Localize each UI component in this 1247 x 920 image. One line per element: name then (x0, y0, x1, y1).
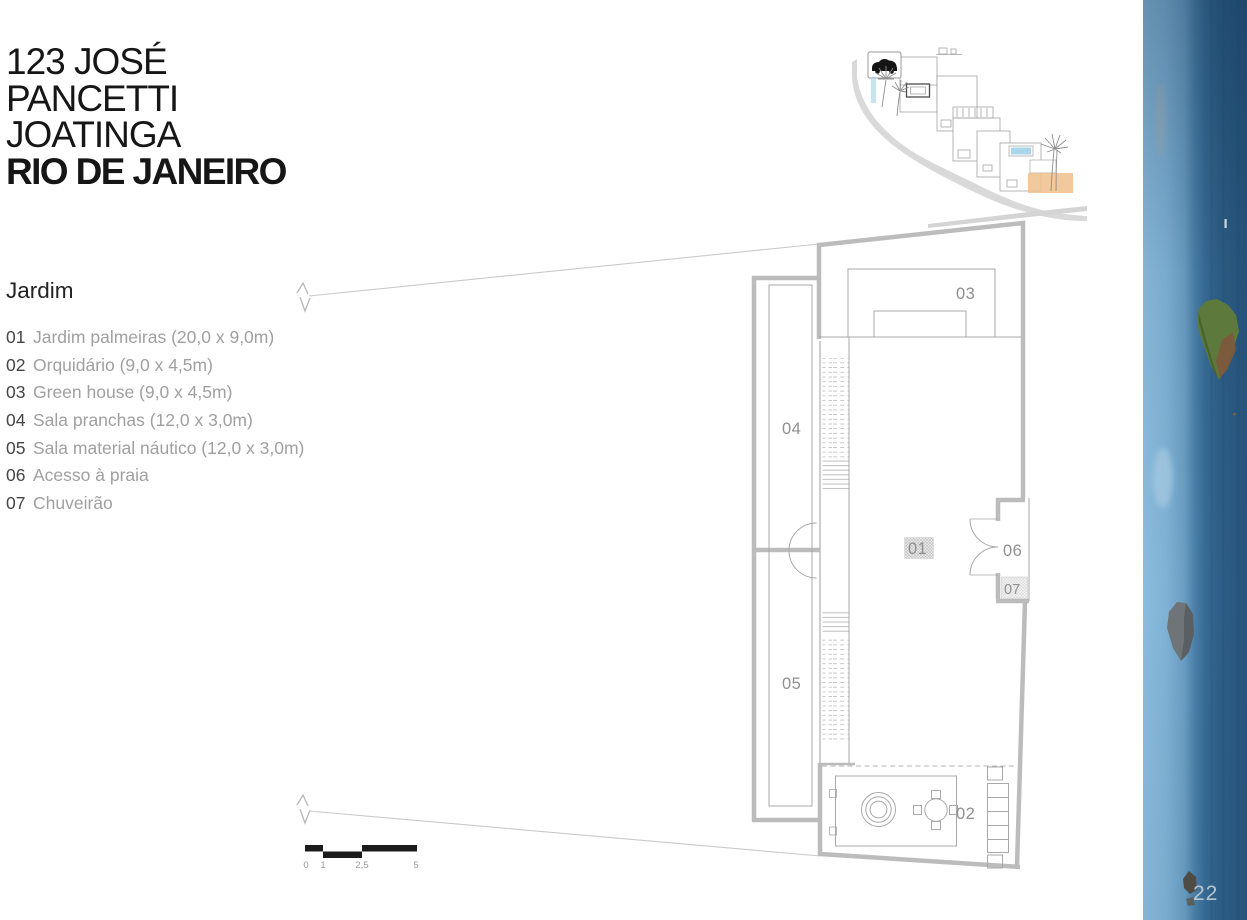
table-and-chairs (914, 791, 958, 830)
plan-room-label-07: 07 (1004, 582, 1020, 598)
annex-inner-wall (769, 285, 812, 806)
plan-room-label-04: 04 (782, 420, 801, 438)
annex-walls (754, 278, 820, 820)
plan-right-bottom-walls (820, 601, 1025, 867)
section-cut-line-top (309, 244, 819, 296)
section-marker-bottom (297, 795, 310, 823)
scale-tick-3: 5 (413, 860, 418, 871)
plan-room-label-06: 06 (1003, 542, 1022, 560)
architectural-drawings: 0 1 2,5 5 (0, 0, 1247, 920)
scale-bar-segment (323, 852, 362, 859)
bench-seat (988, 767, 1009, 868)
stair-flight-dashed-lower (823, 638, 849, 742)
pool-icon (1011, 148, 1031, 155)
plan-room-label-05: 05 (782, 675, 801, 693)
stair-flight-dashed-upper (823, 358, 849, 460)
page: 123 JOSÉ PANCETTI JOATINGA RIO DE JANEIR… (0, 0, 1247, 920)
cloud (1153, 448, 1173, 508)
greenhouse-outline (848, 269, 995, 337)
round-planter (862, 793, 896, 827)
roof-deck-details (936, 48, 962, 55)
plan-outer-walls (819, 223, 1023, 498)
scale-tick-1: 1 (320, 860, 325, 871)
scale-tick-0: 0 (303, 860, 308, 871)
section-marker-top (297, 283, 310, 311)
scale-tick-2: 2,5 (355, 860, 368, 871)
sky-haze (1156, 82, 1166, 158)
boat-speck (1225, 219, 1227, 228)
plan-room-label-03: 03 (956, 285, 975, 303)
plan-room-label-02: 02 (956, 805, 975, 823)
floor-plan: 03 04 05 01 06 07 02 (754, 223, 1029, 868)
stair-flight-lower (823, 609, 849, 634)
garden-highlight (1028, 173, 1073, 193)
scale-bar: 0 1 2,5 5 (303, 845, 418, 871)
stair-flight-upper (823, 460, 849, 489)
site-section-drawing (852, 48, 1087, 228)
scale-bar-segment (362, 845, 417, 852)
greenhouse-bench (874, 311, 966, 337)
framed-window (907, 84, 930, 97)
page-number: 22 (1193, 882, 1218, 905)
scale-bar-segment (305, 845, 323, 852)
ocean-photo-strip: 22 (1143, 0, 1247, 920)
plan-room-label-01: 01 (908, 540, 927, 558)
double-door-arcs (970, 519, 998, 575)
orchid-bed (836, 776, 957, 846)
sea-speck (1233, 413, 1236, 416)
water-cascade (871, 77, 876, 103)
